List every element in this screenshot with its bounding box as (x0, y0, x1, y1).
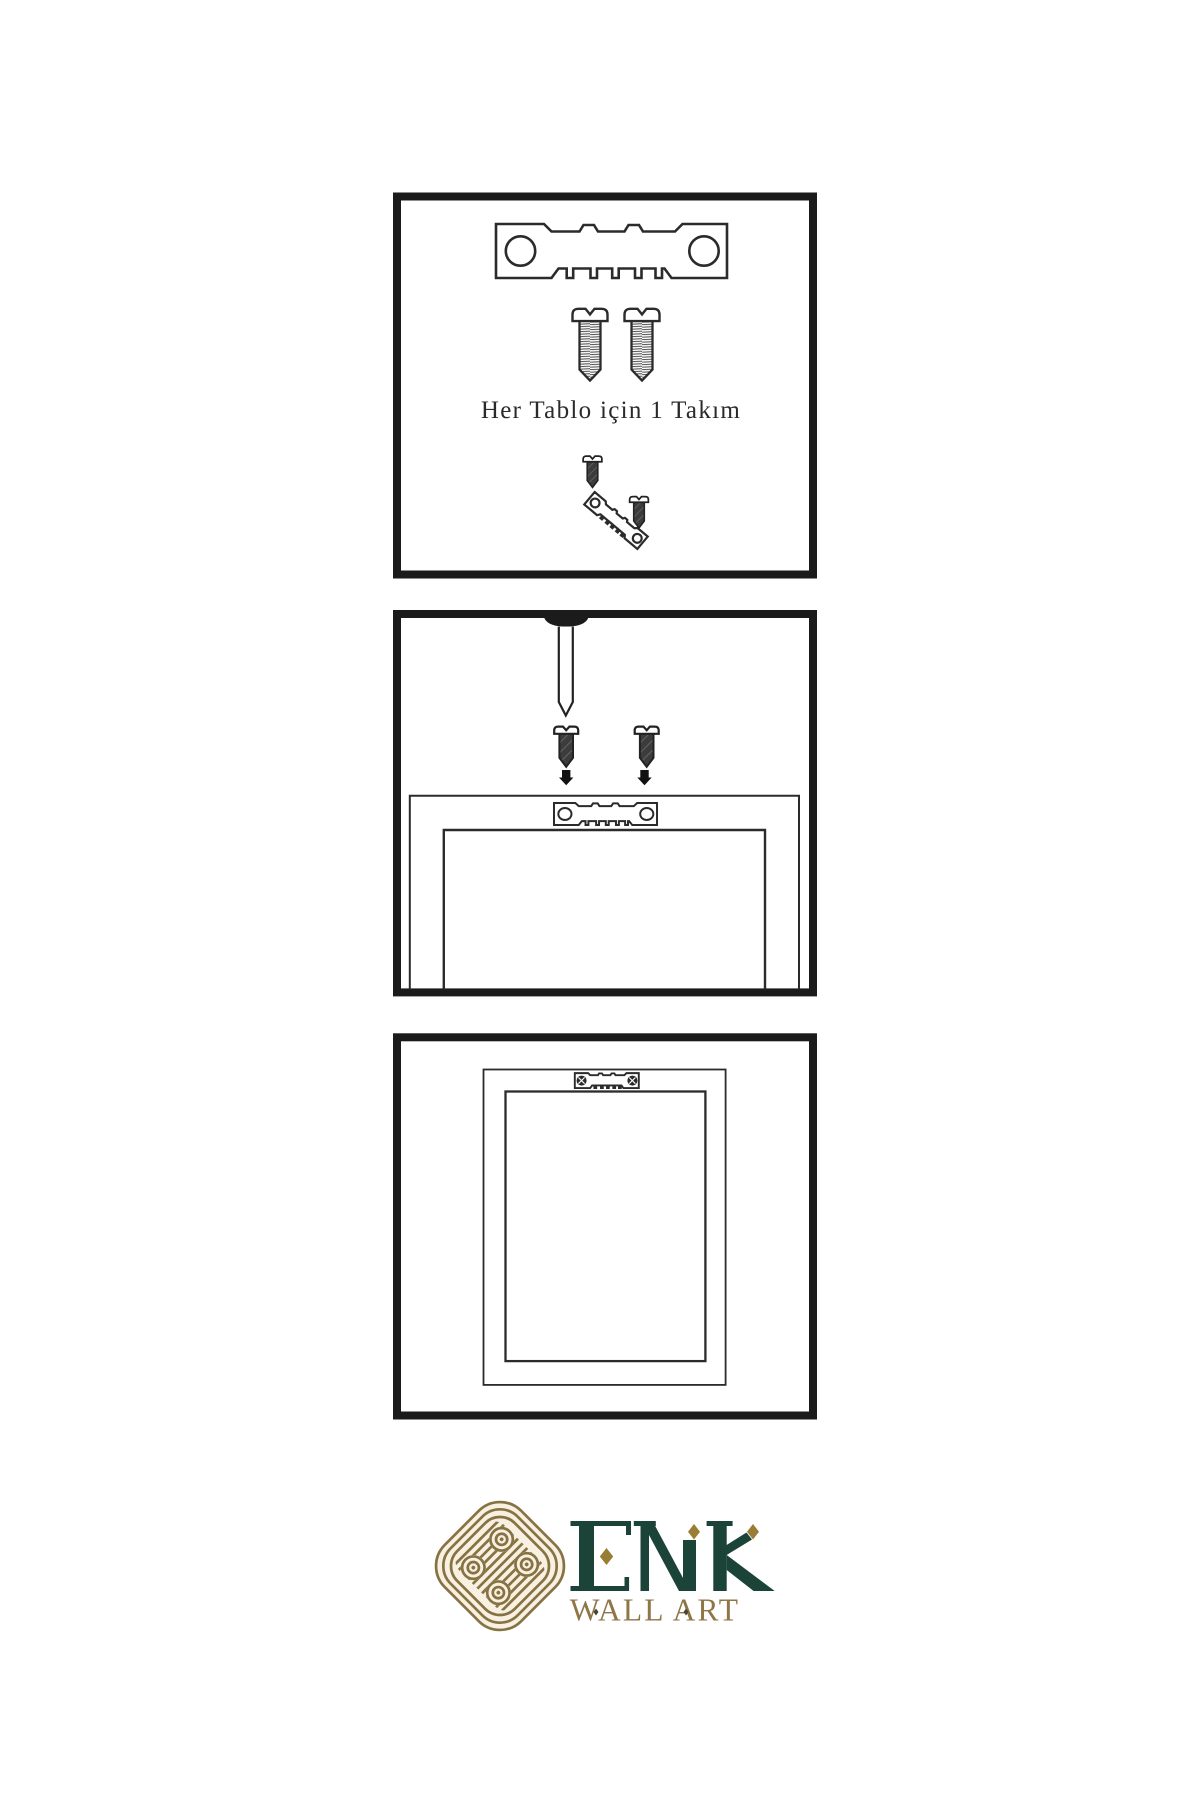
svg-text:Her Tablo için 1 Takım: Her Tablo için 1 Takım (481, 397, 741, 424)
